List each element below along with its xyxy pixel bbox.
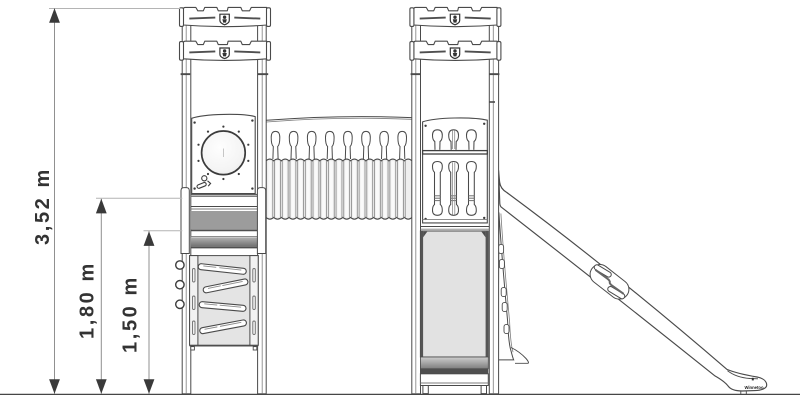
svg-text:1,80 m: 1,80 m — [77, 261, 99, 339]
svg-text:3,52 m: 3,52 m — [32, 167, 54, 245]
svg-text:Winnetoo: Winnetoo — [744, 385, 763, 390]
svg-text:1,50 m: 1,50 m — [119, 275, 141, 353]
